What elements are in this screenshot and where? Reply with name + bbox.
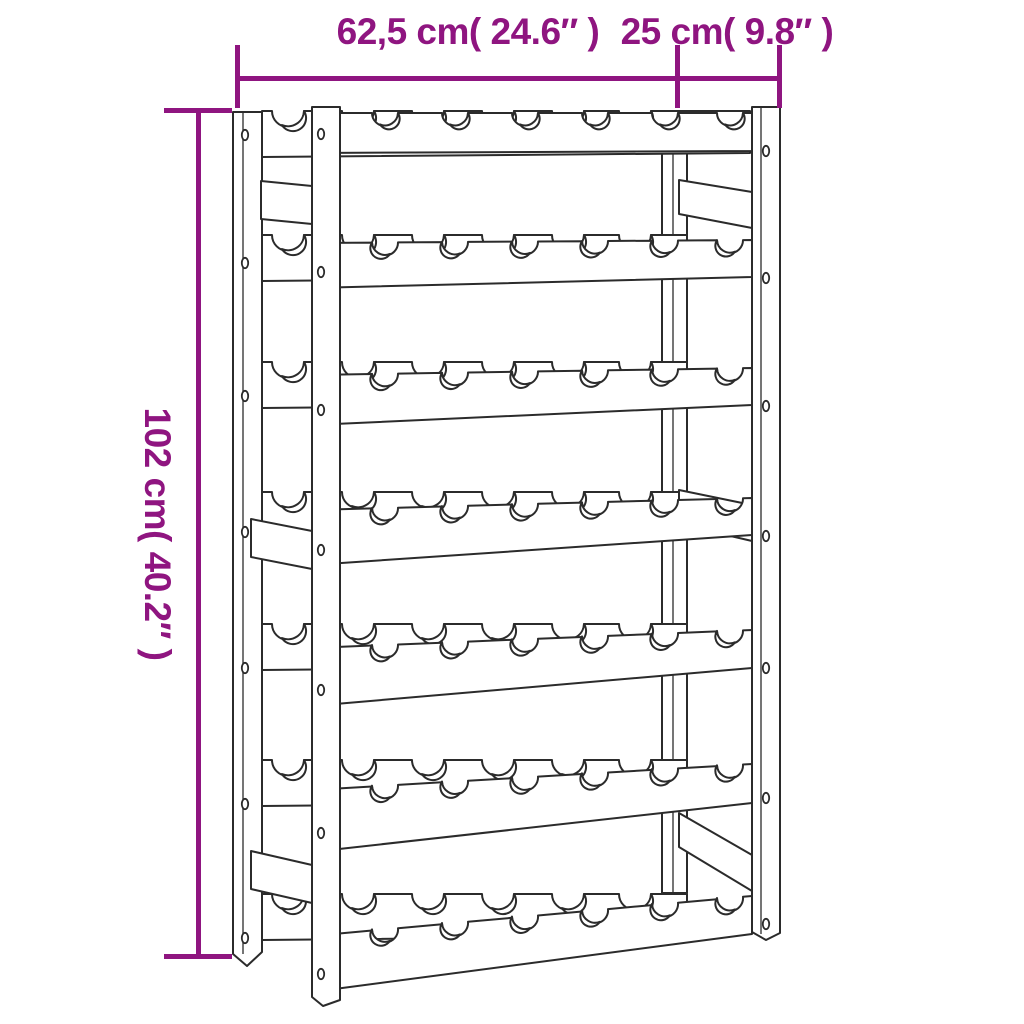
screw — [318, 828, 324, 838]
shelf-front-rail-notch-shading — [715, 898, 735, 914]
screw — [242, 663, 248, 673]
screw — [763, 531, 769, 541]
screw — [763, 401, 769, 411]
shelf-back-rail-notch-shading — [352, 894, 376, 914]
wine-rack-dimension-diagram: 62,5 cm( 24.6″ ) 25 cm( 9.8″ ) 102 cm( 4… — [0, 0, 1024, 1024]
shelf-back-rail-notch-shading — [352, 760, 376, 780]
width-depth-dimension: 62,5 cm( 24.6″ ) 25 cm( 9.8″ ) — [237, 11, 833, 108]
screw — [318, 685, 324, 695]
shelf-back-rail-notch-shading — [282, 492, 306, 512]
screw — [242, 527, 248, 537]
shelf-back-rail-notch-shading — [282, 624, 306, 644]
height-label: 102 cm( 40.2″ ) — [137, 408, 178, 661]
height-dimension: 102 cm( 40.2″ ) — [137, 110, 232, 957]
screw — [242, 799, 248, 809]
rack-post-front-right — [752, 107, 780, 940]
shelf-front-rail-notch-shading — [715, 368, 735, 384]
shelf-back-rail-notch-shading — [422, 624, 446, 644]
shelf-back-rail-notch-shading — [352, 624, 376, 644]
screw — [318, 545, 324, 555]
screw — [763, 793, 769, 803]
shelf-front-rail-notch-shading — [715, 240, 735, 256]
shelf-back-rail-notch-shading — [282, 235, 306, 255]
side-rail-right — [679, 180, 752, 228]
screw — [242, 258, 248, 268]
screw — [763, 146, 769, 156]
shelf-back-rail-notch-shading — [422, 894, 446, 914]
dimension-diagram-page: 62,5 cm( 24.6″ ) 25 cm( 9.8″ ) 102 cm( 4… — [0, 0, 1024, 1024]
shelf-front-rail-notch-shading — [715, 631, 735, 647]
shelf-front-rail-notch-shading — [715, 765, 735, 781]
shelf-back-rail-notch-shading — [282, 111, 306, 131]
depth-label: 25 cm( 9.8″ ) — [621, 11, 834, 52]
screw — [318, 267, 324, 277]
side-rail-right — [679, 813, 752, 891]
shelf-back-rail-notch-shading — [282, 760, 306, 780]
wine-rack-drawing — [233, 107, 780, 1006]
screw — [242, 391, 248, 401]
shelf-back-rail-notch-shading — [422, 760, 446, 780]
screw — [763, 273, 769, 283]
side-rail-left — [261, 181, 312, 224]
screw — [318, 129, 324, 139]
screw — [763, 919, 769, 929]
screw — [242, 933, 248, 943]
shelf-back-rail-notch-shading — [492, 894, 516, 914]
screw — [763, 663, 769, 673]
screw — [318, 969, 324, 979]
screw — [242, 130, 248, 140]
width-label: 62,5 cm( 24.6″ ) — [337, 11, 600, 52]
rack-post-front-left — [312, 107, 340, 1006]
shelf-back-rail-notch-shading — [282, 362, 306, 382]
screw — [318, 405, 324, 415]
